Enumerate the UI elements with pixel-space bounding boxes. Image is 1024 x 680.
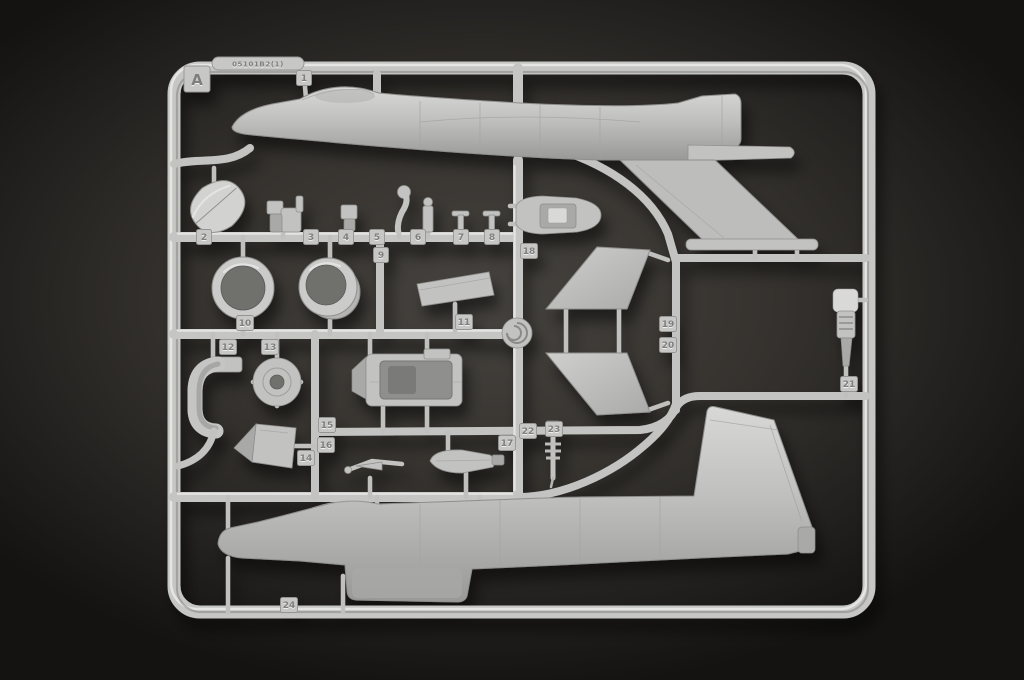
part-fin-base-strip <box>686 239 818 250</box>
svg-text:9: 9 <box>378 251 384 261</box>
part-engine-nozzle-1 <box>212 257 274 319</box>
part-number-tag-19: 1919 <box>660 317 677 332</box>
ventral-intake <box>352 568 462 598</box>
part-small-block-4 <box>341 205 357 231</box>
part-number-tag-20: 2020 <box>660 338 677 353</box>
part-number-tag-11: 1111 <box>456 315 473 330</box>
svg-text:18: 18 <box>523 247 536 257</box>
part-swirl-disc <box>502 318 532 348</box>
part-number-tag-13: 1313 <box>262 340 279 355</box>
mold-code-plate: 05101B2(1) 05101B2(1) <box>212 57 304 70</box>
svg-text:12: 12 <box>222 343 235 353</box>
part-spine-insert <box>516 196 601 234</box>
part-number-tag-4: 44 <box>339 230 354 245</box>
svg-text:05101B2(1): 05101B2(1) <box>232 61 284 69</box>
part-wheel-disc-13 <box>253 358 301 406</box>
tail-nozzle <box>798 527 815 553</box>
sprue-photo: 05101B2(1) 05101B2(1) A A <box>0 0 1024 680</box>
part-t-lever-7 <box>452 211 469 232</box>
svg-text:A: A <box>191 71 203 89</box>
part-number-tag-7: 77 <box>454 230 469 245</box>
part-number-tag-12: 1212 <box>220 340 237 355</box>
part-curved-arm-5 <box>398 186 411 232</box>
svg-text:13: 13 <box>264 343 277 353</box>
part-nose-cone <box>181 170 255 242</box>
part-equipment-box-14 <box>234 424 296 468</box>
svg-text:22: 22 <box>522 427 535 437</box>
part-t-lever-8 <box>483 211 500 232</box>
part-cockpit-tub <box>352 349 462 406</box>
svg-text:14: 14 <box>300 454 313 464</box>
part-number-tag-17: 1717 <box>499 436 516 451</box>
part-small-nozzle-6 <box>423 198 433 233</box>
part-number-tag-23: 2323 <box>546 422 563 437</box>
svg-text:11: 11 <box>458 318 471 328</box>
svg-text:8: 8 <box>489 233 495 243</box>
part-intake-ramp <box>417 272 494 306</box>
part-tailplane-slab <box>688 145 794 161</box>
svg-text:1: 1 <box>301 74 307 84</box>
part-number-tag-21: 2121 <box>841 377 858 392</box>
part-canopy-frame-12 <box>178 357 242 466</box>
runner-nose-branch <box>174 148 250 164</box>
svg-text:20: 20 <box>662 341 675 351</box>
part-small-bracket-3 <box>267 196 303 232</box>
svg-text:19: 19 <box>662 320 675 330</box>
part-number-tag-18: 1818 <box>521 244 538 259</box>
part-number-tag-3: 33 <box>304 230 319 245</box>
part-number-tag-10: 1010 <box>237 316 254 331</box>
part-number-tag-15: 1515 <box>319 418 336 433</box>
canopy-shading <box>315 89 375 103</box>
svg-text:3: 3 <box>308 233 314 243</box>
svg-text:7: 7 <box>458 233 464 243</box>
sprue-photo-scene: 05101B2(1) 05101B2(1) A A <box>0 0 1024 680</box>
svg-text:4: 4 <box>343 233 349 243</box>
svg-text:5: 5 <box>374 233 380 243</box>
part-number-tag-9: 99 <box>374 248 389 263</box>
svg-text:10: 10 <box>239 319 252 329</box>
part-wing-upper-19 <box>546 247 650 309</box>
part-number-tag-22: 2222 <box>520 424 537 439</box>
part-number-tag-1: 11 <box>297 71 312 86</box>
svg-text:6: 6 <box>415 233 421 243</box>
part-pitot-arm <box>345 461 403 474</box>
part-number-tag-16: 1616 <box>318 438 335 453</box>
svg-text:23: 23 <box>548 425 561 435</box>
svg-text:17: 17 <box>501 439 514 449</box>
sprue-letter-tag: A A <box>184 66 210 92</box>
svg-text:16: 16 <box>320 441 333 451</box>
runner-curve-lower <box>518 404 676 497</box>
svg-text:2: 2 <box>201 233 207 243</box>
part-wing-lower-20 <box>546 353 650 415</box>
part-engine-nozzle-2 <box>299 258 360 319</box>
svg-text:24: 24 <box>283 601 296 611</box>
part-number-tag-8: 88 <box>485 230 500 245</box>
part-number-tag-24: 2424 <box>281 598 298 613</box>
part-number-tag-2: 22 <box>197 230 212 245</box>
svg-text:21: 21 <box>843 380 856 390</box>
part-canopy-17 <box>430 450 504 473</box>
part-actuator-21 <box>833 289 858 366</box>
part-number-tag-5: 55 <box>370 230 385 245</box>
part-number-tag-14: 1414 <box>298 451 315 466</box>
part-number-tag-6: 66 <box>411 230 426 245</box>
svg-text:15: 15 <box>321 421 334 431</box>
